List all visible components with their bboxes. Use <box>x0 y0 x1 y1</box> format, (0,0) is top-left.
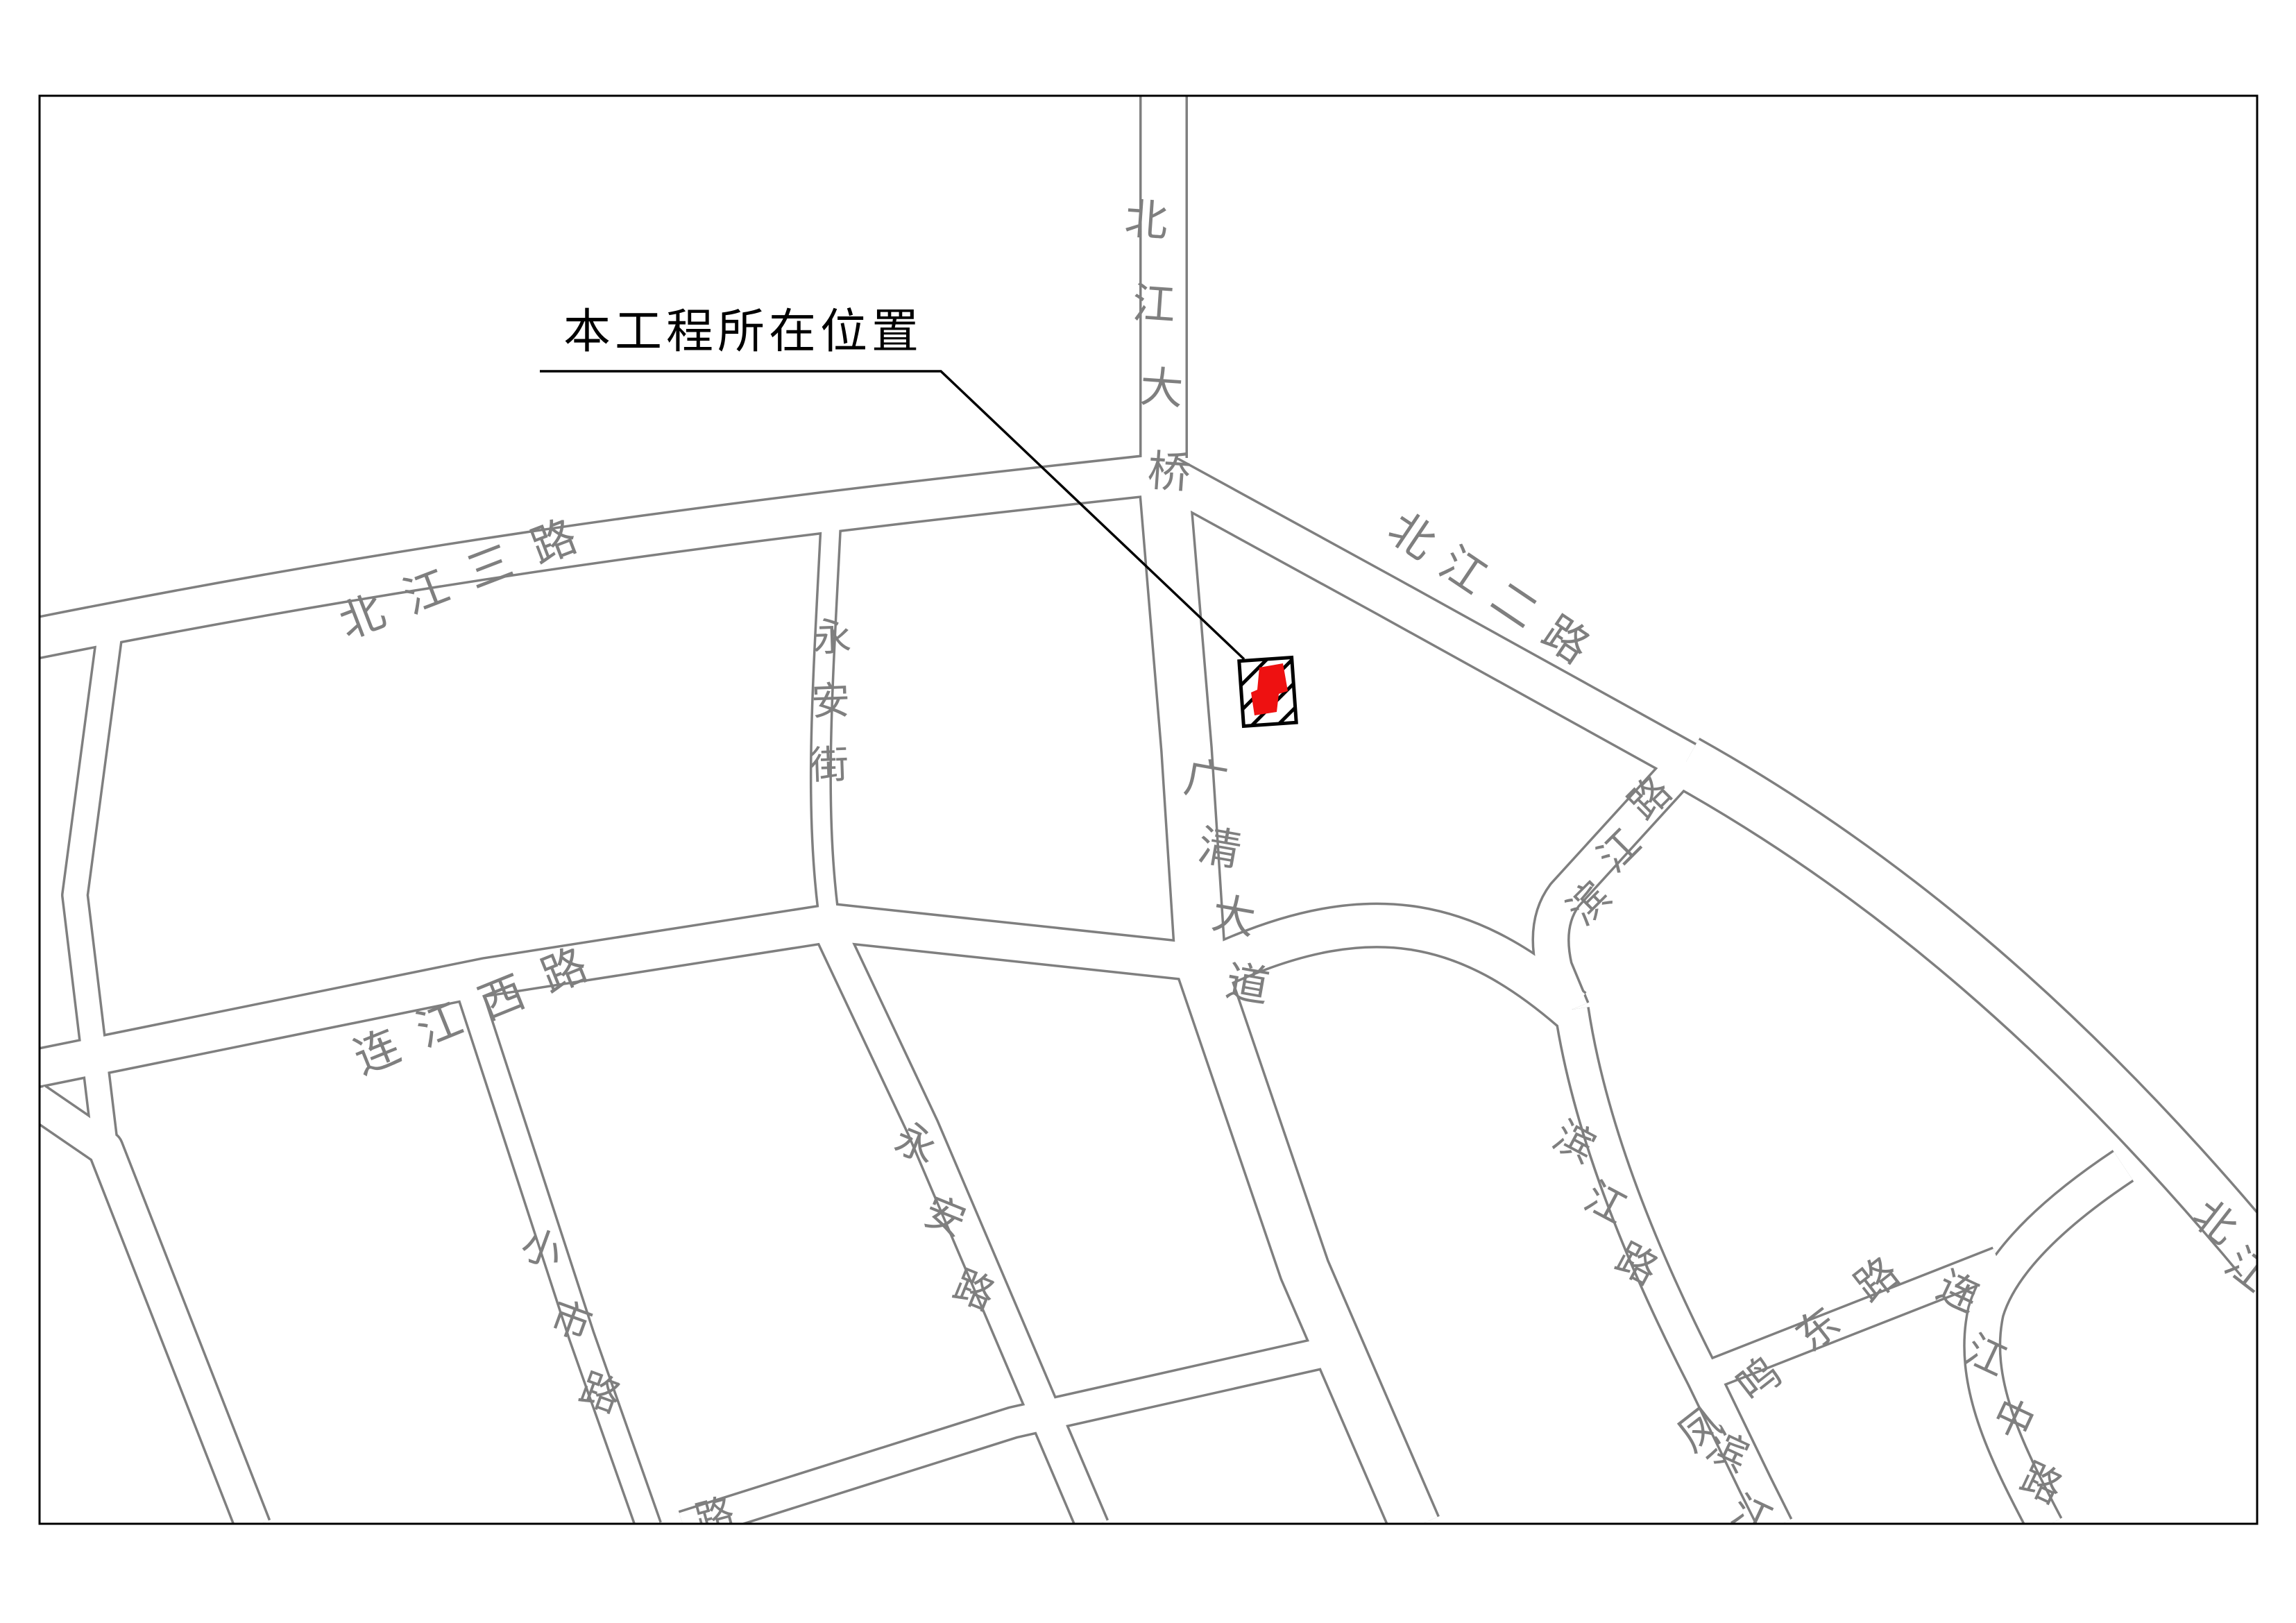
label-char: 清 <box>1194 822 1245 876</box>
label-char: 街 <box>809 742 849 788</box>
road-yongan-street <box>821 529 831 933</box>
label-char: 在 <box>769 305 816 358</box>
label-char: 置 <box>871 305 919 358</box>
label-char: 程 <box>666 305 713 358</box>
location-map-page: 北江大桥北江三路北江二路永安街广清大道滨江路连江西路小市路永安路滨江路凤鸣东路连… <box>0 0 2296 1623</box>
label-char: 大 <box>1208 890 1259 944</box>
location-map-canvas: 北江大桥北江三路北江二路永安街广清大道滨江路连江西路小市路永安路滨江路凤鸣东路连… <box>0 0 2296 1623</box>
label-char: 大 <box>1139 363 1185 414</box>
label-char: 本 <box>563 305 611 358</box>
road-label-yongan-street: 永安街 <box>809 615 852 788</box>
label-char: 广 <box>1180 754 1231 808</box>
project-location-marker <box>1239 658 1296 726</box>
label-char: 江 <box>1131 279 1177 330</box>
label-char: 桥 <box>1146 447 1193 498</box>
label-char: 工 <box>615 305 662 358</box>
project-location-label: 本工程所在位置 <box>563 305 919 358</box>
label-char: 永 <box>812 615 852 660</box>
label-char: 道 <box>1222 958 1273 1012</box>
road-label-project-title: 本工程所在位置 <box>563 305 919 358</box>
label-char: 所 <box>717 305 765 358</box>
label-char: 北 <box>1123 195 1170 246</box>
label-char: 位 <box>820 305 867 358</box>
label-char: 安 <box>810 679 851 724</box>
